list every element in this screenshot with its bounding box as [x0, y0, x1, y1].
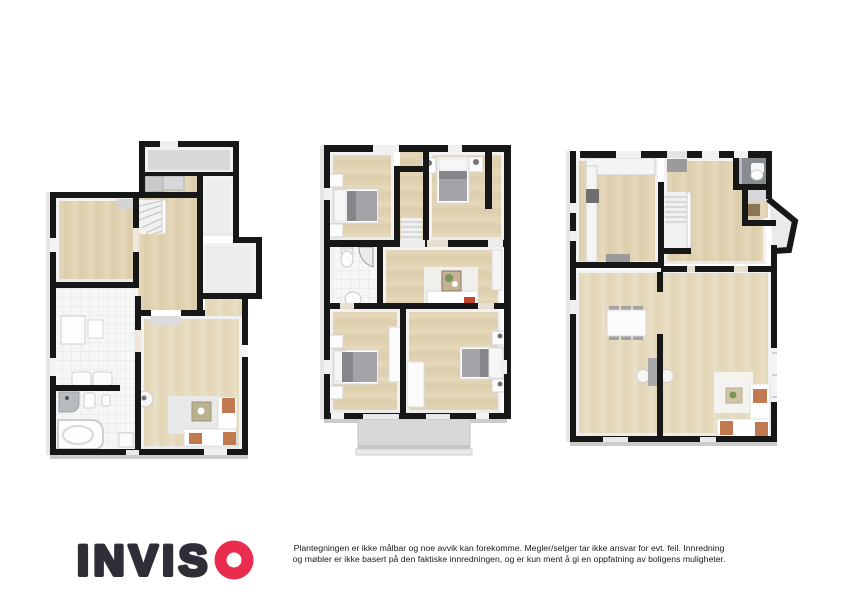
svg-text:og møbler er ikke basert på de: og møbler er ikke basert på den faktiske… [293, 554, 726, 564]
svg-text:INVIS: INVIS [77, 537, 212, 585]
svg-text:Plantegningen er ikke målbar o: Plantegningen er ikke målbar og noe avvi… [294, 543, 725, 553]
